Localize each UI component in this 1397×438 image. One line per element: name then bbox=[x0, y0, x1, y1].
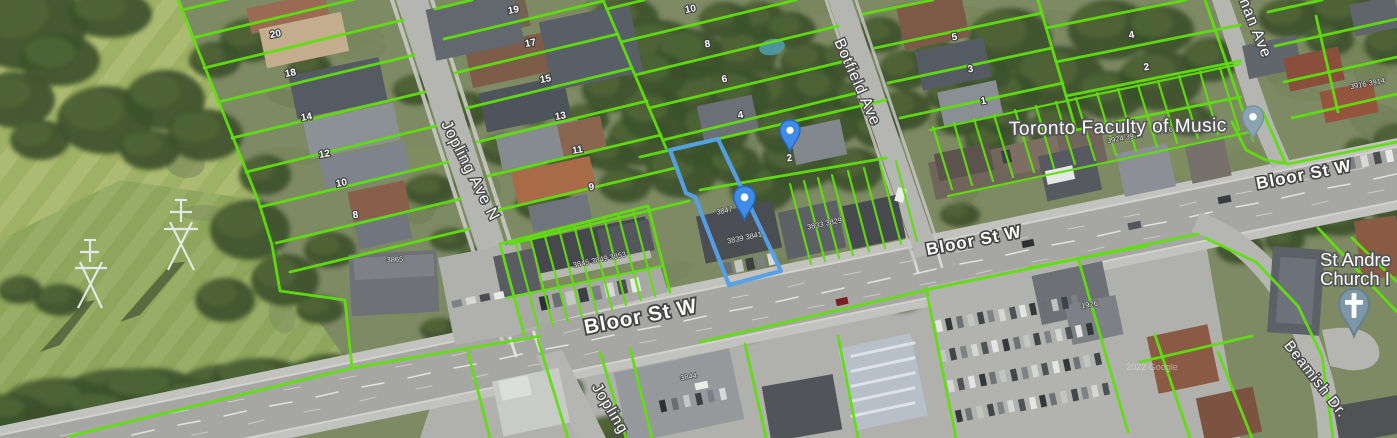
svg-text:3865: 3865 bbox=[386, 255, 403, 265]
svg-text:Church I: Church I bbox=[1320, 268, 1390, 289]
svg-text:2022 Google: 2022 Google bbox=[1126, 362, 1178, 372]
svg-text:St Andre: St Andre bbox=[1320, 249, 1391, 270]
svg-text:Toronto Faculty of Music: Toronto Faculty of Music bbox=[1009, 115, 1227, 140]
